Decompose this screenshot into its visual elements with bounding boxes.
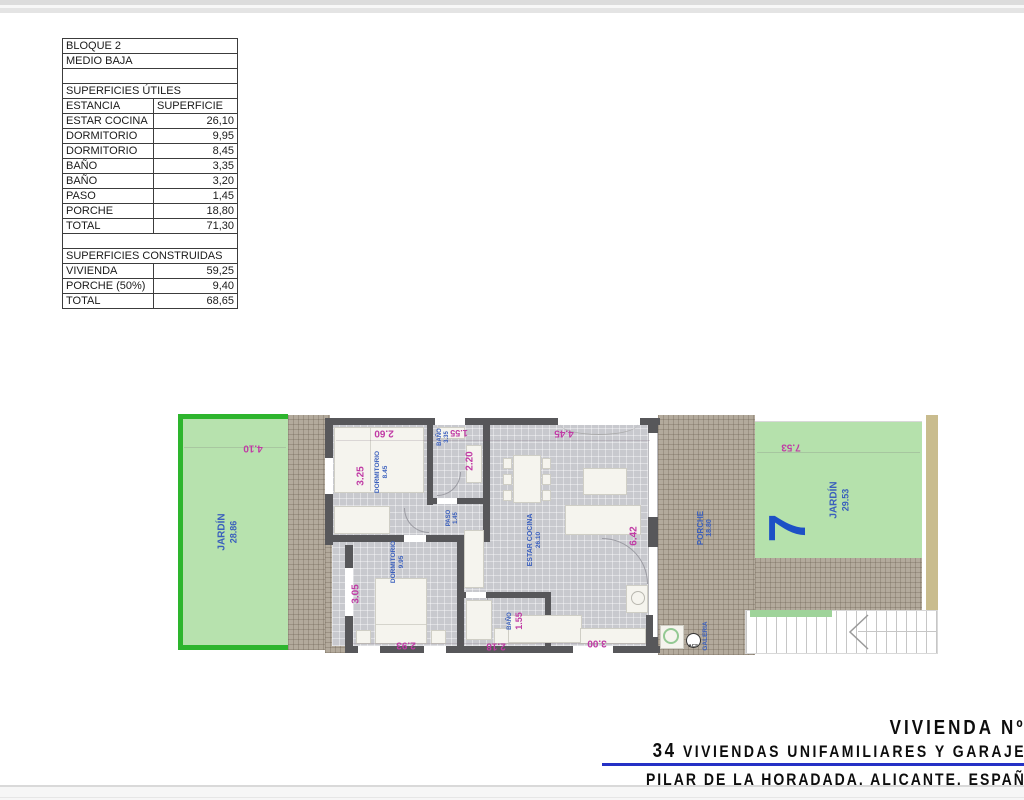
bath1-dim-h: 1.55 [450,428,468,438]
project-location: PILAR DE LA HORADADA. ALICANTE. ESPAÑA [568,769,1024,788]
wardrobe-dorm1 [334,506,390,534]
wall-galeria [646,615,653,653]
bed-dorm1-pillow-line [370,428,371,491]
window-bottom-1 [358,646,380,653]
living-label: ESTAR COCINA 26.10 [527,514,543,567]
porche-label: PORCHE 18.80 [696,511,714,545]
room-name: BAÑO [507,612,514,630]
wall-right-seg [648,517,658,547]
room-name: ESTAR COCINA [527,514,535,567]
paso-label: PASO 1.45 [446,510,460,527]
nightstand-dorm2-right [431,630,446,644]
garden-right-width-dim: 7.53 [781,442,800,453]
title-block: VIVIENDA Nº7 34 VIVIENDAS UNIFAMILIARES … [568,718,1024,787]
stairs-green-sliver [750,610,832,617]
dining-chair [542,458,551,469]
project-name: 34 VIVIENDAS UNIFAMILIARES Y GARAJES [568,739,1024,763]
dorm2-dim-h: 2.93 [396,640,415,651]
garden-right-label: JARDÍN 29.53 [829,481,852,518]
room-area: 26.10 [535,514,543,567]
table-row-total: TOTAL68,65 [62,294,238,309]
wall-bath1-living [483,425,490,540]
room-area: 1.45 [453,510,460,527]
bottom-band-line2 [0,797,1024,798]
table-row-total: TOTAL71,30 [62,219,238,234]
room-name: BAÑO [437,428,444,446]
dining-chair [542,474,551,485]
title-rule [602,763,1024,766]
window-dorm1 [325,458,333,494]
paving-below-garden-right [755,558,922,618]
dining-chair [503,458,512,469]
table-row: BAÑO3,35 [62,159,238,174]
bed-dorm2-pillow-line [376,624,426,625]
living-dim-right: 6.42 [629,526,640,545]
paving-strip-left [288,415,330,650]
garden-left-area: 28.86 [229,513,240,550]
acs-symbol: ACS [686,633,701,648]
plan-sheet: BLOQUE 2 MEDIO BAJA SUPERFICIES ÚTILES E… [0,0,1024,800]
kitchen-sink-bowl [631,591,645,605]
living-dim-top: 4.45 [554,428,573,439]
room-name: DORMITORIO [374,451,382,493]
dorm2-dim-v: 3.05 [351,584,362,603]
room-name: DORMITORIO [390,541,398,583]
table-column-header: ESTANCIASUPERFICIE [62,99,238,114]
washing-machine-drum [663,628,679,644]
garden-right-name: JARDÍN [829,481,841,518]
dining-chair [503,490,512,501]
dorm2-label: DORMITORIO 9.95 [390,541,406,583]
table-row: BAÑO3,20 [62,174,238,189]
garden-left-label: JARDÍN 28.86 [217,513,240,550]
window-bath1 [435,418,465,425]
tv-unit [583,468,627,495]
garden-right-area: 29.53 [841,481,852,518]
living-dim-bottom: 3.00 [587,638,606,649]
table-section-header: SUPERFICIES CONSTRUIDAS [62,249,238,264]
closet-hall [464,530,484,588]
table-section-header: SUPERFICIES ÚTILES [62,84,238,99]
bath1-label: BAÑO 3.35 [437,428,451,446]
table-row: PORCHE18,80 [62,204,238,219]
door-gap-dorm2 [404,535,426,542]
dimension-line [336,440,650,441]
bottom-band [0,787,1024,800]
nightstand-dorm2-left [356,630,371,644]
bath2-shower [466,600,492,640]
table-row: PORCHE (50%)9,40 [62,279,238,294]
dorm1-dim-v: 3.25 [356,466,367,485]
bed-dorm2 [375,578,427,644]
wall-right-seg [648,418,658,433]
dining-table [513,455,541,503]
table-row: DORMITORIO8,45 [62,144,238,159]
porche-area: 18.80 [706,511,714,545]
stairs-direction-chevron [846,613,870,651]
door-gap-bath1 [437,498,457,504]
dimension-line [184,447,286,448]
top-band-2 [0,8,1024,13]
table-row-blank [62,69,238,84]
project-unit-title: VIVIENDA Nº7 [568,716,1024,740]
dining-chair [503,474,512,485]
project-count: 34 [653,739,677,762]
galeria-label: GALERIA [702,621,710,650]
bath2-dim-v: 1.55 [514,612,525,630]
garden-left-width-dim: 4.10 [243,443,262,454]
room-area: 8.45 [382,451,390,493]
table-row: BLOQUE 2 [62,39,238,54]
wall-dorm1-bath1 [427,425,433,505]
unit-number: 7 [762,514,814,543]
room-name: PASO [446,510,453,527]
dorm1-label: DORMITORIO 8.45 [374,451,390,493]
table-row: DORMITORIO9,95 [62,129,238,144]
dining-chair [542,490,551,501]
garden-left-name: JARDÍN [217,513,229,550]
table-row-blank [62,234,238,249]
dorm1-dim-h: 2.60 [374,428,393,439]
project-name-text: VIVIENDAS UNIFAMILIARES Y GARAJES [677,741,1024,760]
room-area: 9.95 [398,541,406,583]
table-row: PASO1,45 [62,189,238,204]
bath2-label: BAÑO 1.55 [507,612,525,630]
surfaces-table: BLOQUE 2 MEDIO BAJA SUPERFICIES ÚTILES E… [62,38,238,309]
boundary-strip [926,415,938,618]
acs-text: ACS [689,641,699,653]
window-bottom-2 [424,646,446,653]
porche-name: PORCHE [696,511,706,545]
table-row: VIVIENDA59,25 [62,264,238,279]
bath1-dim-v: 2.20 [465,451,476,470]
table-row: ESTAR COCINA26,10 [62,114,238,129]
table-row: MEDIO BAJA [62,54,238,69]
bath2-dim-h: 2.18 [486,641,505,652]
